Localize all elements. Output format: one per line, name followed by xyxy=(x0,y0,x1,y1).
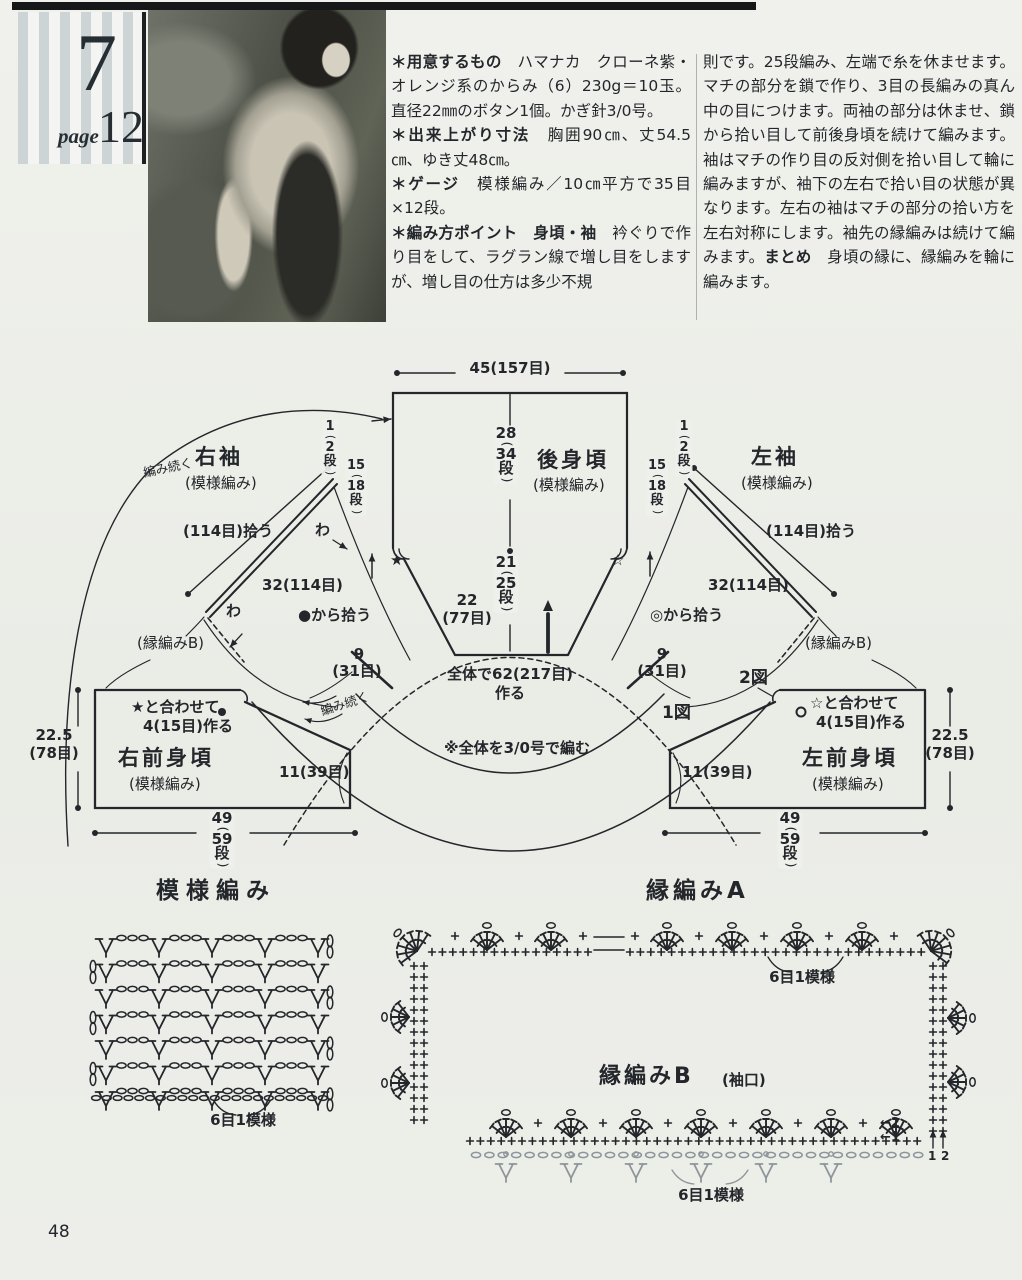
dim-part: ( xyxy=(786,827,794,832)
top-rule xyxy=(12,2,756,10)
back-upper-rows-dim: 28 ( 34 段 ) xyxy=(494,427,519,484)
dim-part: ) xyxy=(502,607,510,612)
dim-part: 段 xyxy=(349,493,362,508)
right-front-height-dim: 22.5 xyxy=(35,727,72,744)
right-front-join-note1: ★と合わせて xyxy=(131,699,219,716)
right-sleeve-pickup-label: (114目)拾う xyxy=(183,523,273,540)
dim-part: ) xyxy=(786,863,794,868)
right-front-bottom-rows-dim: 49 ( 59 段 ) xyxy=(210,812,235,869)
right-front-title: 右前身頃 xyxy=(118,746,214,770)
total-cast-on-label2: 作る xyxy=(495,685,525,702)
dim-part: 18 xyxy=(648,480,666,493)
black-star-marker: ★ xyxy=(390,552,403,569)
dim-part: ) xyxy=(653,510,661,514)
figure-1-label: 1図 xyxy=(662,704,691,724)
dim-part: 18 xyxy=(347,480,365,493)
dim-part: 1 xyxy=(325,420,334,433)
left-front-edge-dim: 11(39目) xyxy=(682,764,752,781)
left-front-subtitle: (模様編み) xyxy=(812,776,884,793)
left-underarm-stitches-dim: (31目) xyxy=(637,663,687,680)
column-divider xyxy=(696,54,697,320)
pattern-repeat-label: 6目1模様 xyxy=(210,1112,276,1129)
white-star-marker: ☆ xyxy=(611,552,624,569)
neck-width-dim: 22 xyxy=(457,592,478,609)
total-cast-on-label: 全体で62(217目) xyxy=(447,666,573,683)
hook-size-note: ※全体を3/0号で編む xyxy=(444,740,590,757)
folio-page-number: 48 xyxy=(48,1222,70,1242)
instructions-column-2: 則です。25段編み、左端で糸を休ませます。マチの部分を鎖で作り、3目の長編みの真… xyxy=(703,50,1015,294)
left-sleeve-title: 左袖 xyxy=(751,445,799,469)
issue-number: 7 xyxy=(76,22,117,104)
right-underarm-dim: 9 xyxy=(354,646,364,663)
dim-part: ( xyxy=(502,442,510,447)
dim-part: 2 xyxy=(325,441,334,454)
dim-part: 段 xyxy=(323,454,336,469)
dim-part: 15 xyxy=(648,459,666,472)
back-lower-rows-dim: 21 ( 25 段 ) xyxy=(494,556,519,613)
dim-part: 2 xyxy=(679,441,688,454)
left-sleeve-rows1-dim: 1 ( 2 段 ) xyxy=(675,420,692,477)
right-front-height-stitches: (78目) xyxy=(29,745,79,762)
back-piece-title: 後身頃 xyxy=(537,448,609,472)
right-sleeve-title: 右袖 xyxy=(195,445,243,469)
dim-part: 段 xyxy=(214,846,229,861)
right-sleeve-edge-dim: 32(114目) xyxy=(262,577,343,594)
edging-a-row1-number: 1 xyxy=(928,1150,936,1164)
dim-part: 段 xyxy=(498,590,513,605)
page-number: 12 xyxy=(98,104,144,150)
right-front-subtitle: (模様編み) xyxy=(129,776,201,793)
left-sleeve-rows2-dim: 15 ( 18 段 ) xyxy=(646,459,668,516)
right-sleeve-pickup-from-dot: ●から拾う xyxy=(298,607,371,624)
dim-part: ) xyxy=(218,863,226,868)
magazine-page: { "header": { "issue_number": "7", "page… xyxy=(0,0,1022,1280)
dim-part: 28 xyxy=(496,427,517,440)
right-front-edge-dim: 11(39目) xyxy=(279,764,349,781)
dim-part: ( xyxy=(653,474,661,478)
dim-part: 1 xyxy=(679,420,688,433)
edging-b-title: 縁編みB xyxy=(599,1064,694,1089)
neck-width-stitches-dim: (77目) xyxy=(442,610,492,627)
gauge-paragraph: ＊ゲージ 模様編み／10㎝平方で35目×12段。 xyxy=(391,172,691,221)
ring-marker-label: わ xyxy=(226,603,241,620)
dim-part: 段 xyxy=(498,461,513,476)
dim-part: ( xyxy=(326,435,334,439)
dim-part: 段 xyxy=(650,493,663,508)
left-underarm-dim: 9 xyxy=(657,646,667,663)
right-underarm-stitches-dim: (31目) xyxy=(332,663,382,680)
dim-part: ) xyxy=(352,510,360,514)
dim-part: 49 xyxy=(780,812,801,825)
left-sleeve-pickup-label: (114目)拾う xyxy=(766,523,856,540)
left-front-bottom-rows-dim: 49 ( 59 段 ) xyxy=(778,812,803,869)
left-front-title: 左前身頃 xyxy=(802,746,898,770)
dim-part: ( xyxy=(218,827,226,832)
left-front-join-note2: 4(15目)作る xyxy=(816,714,906,731)
edging-b-row1-marker: ←1 xyxy=(880,1131,900,1146)
right-sleeve-edging-b-label: (縁編みB) xyxy=(137,635,204,652)
dim-part: ) xyxy=(680,471,688,475)
dim-part: ( xyxy=(680,435,688,439)
edging-a-title: 縁編みA xyxy=(646,878,749,904)
dim-part: 49 xyxy=(212,812,233,825)
left-sleeve-pickup-from-ring: ◎から拾う xyxy=(650,607,723,624)
model-photo xyxy=(148,10,386,322)
left-sleeve-subtitle: (模様編み) xyxy=(741,475,813,492)
dim-part: ( xyxy=(352,474,360,478)
ring-marker-label: わ xyxy=(315,522,330,539)
size-label: ＊出来上がり寸法 xyxy=(391,126,530,144)
instructions-column-1: ＊用意するもの ハマナカ クローネ紫・オレンジ系のからみ（6）230g＝10玉。… xyxy=(391,50,691,294)
right-front-join-note2: 4(15目)作る xyxy=(143,718,233,735)
left-sleeve-edging-b-label: (縁編みB) xyxy=(805,635,872,652)
howto-continued-paragraph: 則です。25段編み、左端で糸を休ませます。マチの部分を鎖で作り、3目の長編みの真… xyxy=(703,50,1015,294)
gauge-label: ＊ゲージ xyxy=(391,175,460,193)
left-front-join-note1: ☆と合わせて xyxy=(810,695,898,712)
howto-label: ＊編み方ポイント 身頃・袖 xyxy=(391,224,596,242)
finishing-label: まとめ xyxy=(764,248,811,266)
left-sleeve-edge-dim: 32(114目) xyxy=(708,577,789,594)
dim-part: ) xyxy=(502,478,510,483)
schematic-drawing xyxy=(0,350,1022,1280)
howto-continued-text: 則です。25段編み、左端で糸を休ませます。マチの部分を鎖で作り、3目の長編みの真… xyxy=(703,53,1015,266)
dim-part: 段 xyxy=(782,846,797,861)
edging-a-repeat-label: 6目1模様 xyxy=(769,969,835,986)
howto-paragraph: ＊編み方ポイント 身頃・袖 衿ぐりで作り目をして、ラグラン線で増し目をしますが、… xyxy=(391,221,691,294)
pattern-stitch-title: 模様編み xyxy=(156,878,276,904)
dim-part: 段 xyxy=(677,454,690,469)
materials-label: ＊用意するもの xyxy=(391,53,502,71)
page-word: page xyxy=(58,124,99,149)
materials-paragraph: ＊用意するもの ハマナカ クローネ紫・オレンジ系のからみ（6）230g＝10玉。… xyxy=(391,50,691,123)
dim-part: ( xyxy=(502,571,510,576)
size-paragraph: ＊出来上がり寸法 胸囲90㎝、丈54.5㎝、ゆき丈48㎝。 xyxy=(391,123,691,172)
dim-part: 21 xyxy=(496,556,517,569)
dim-part: ) xyxy=(326,471,334,475)
left-front-height-stitches: (78目) xyxy=(925,745,975,762)
right-sleeve-subtitle: (模様編み) xyxy=(185,475,257,492)
right-sleeve-rows1-dim: 1 ( 2 段 ) xyxy=(321,420,338,477)
back-piece-subtitle: (模様編み) xyxy=(533,477,605,494)
figure-2-label: 2図 xyxy=(739,669,768,689)
edging-b-repeat-label: 6目1模様 xyxy=(678,1187,744,1204)
edging-a-row2-number: 2 xyxy=(941,1150,949,1164)
left-front-height-dim: 22.5 xyxy=(931,727,968,744)
edging-b-subtitle: (袖口) xyxy=(722,1072,766,1089)
dim-part: 15 xyxy=(347,459,365,472)
right-sleeve-rows2-dim: 15 ( 18 段 ) xyxy=(345,459,367,516)
back-width-dim: 45(157目) xyxy=(470,360,551,377)
